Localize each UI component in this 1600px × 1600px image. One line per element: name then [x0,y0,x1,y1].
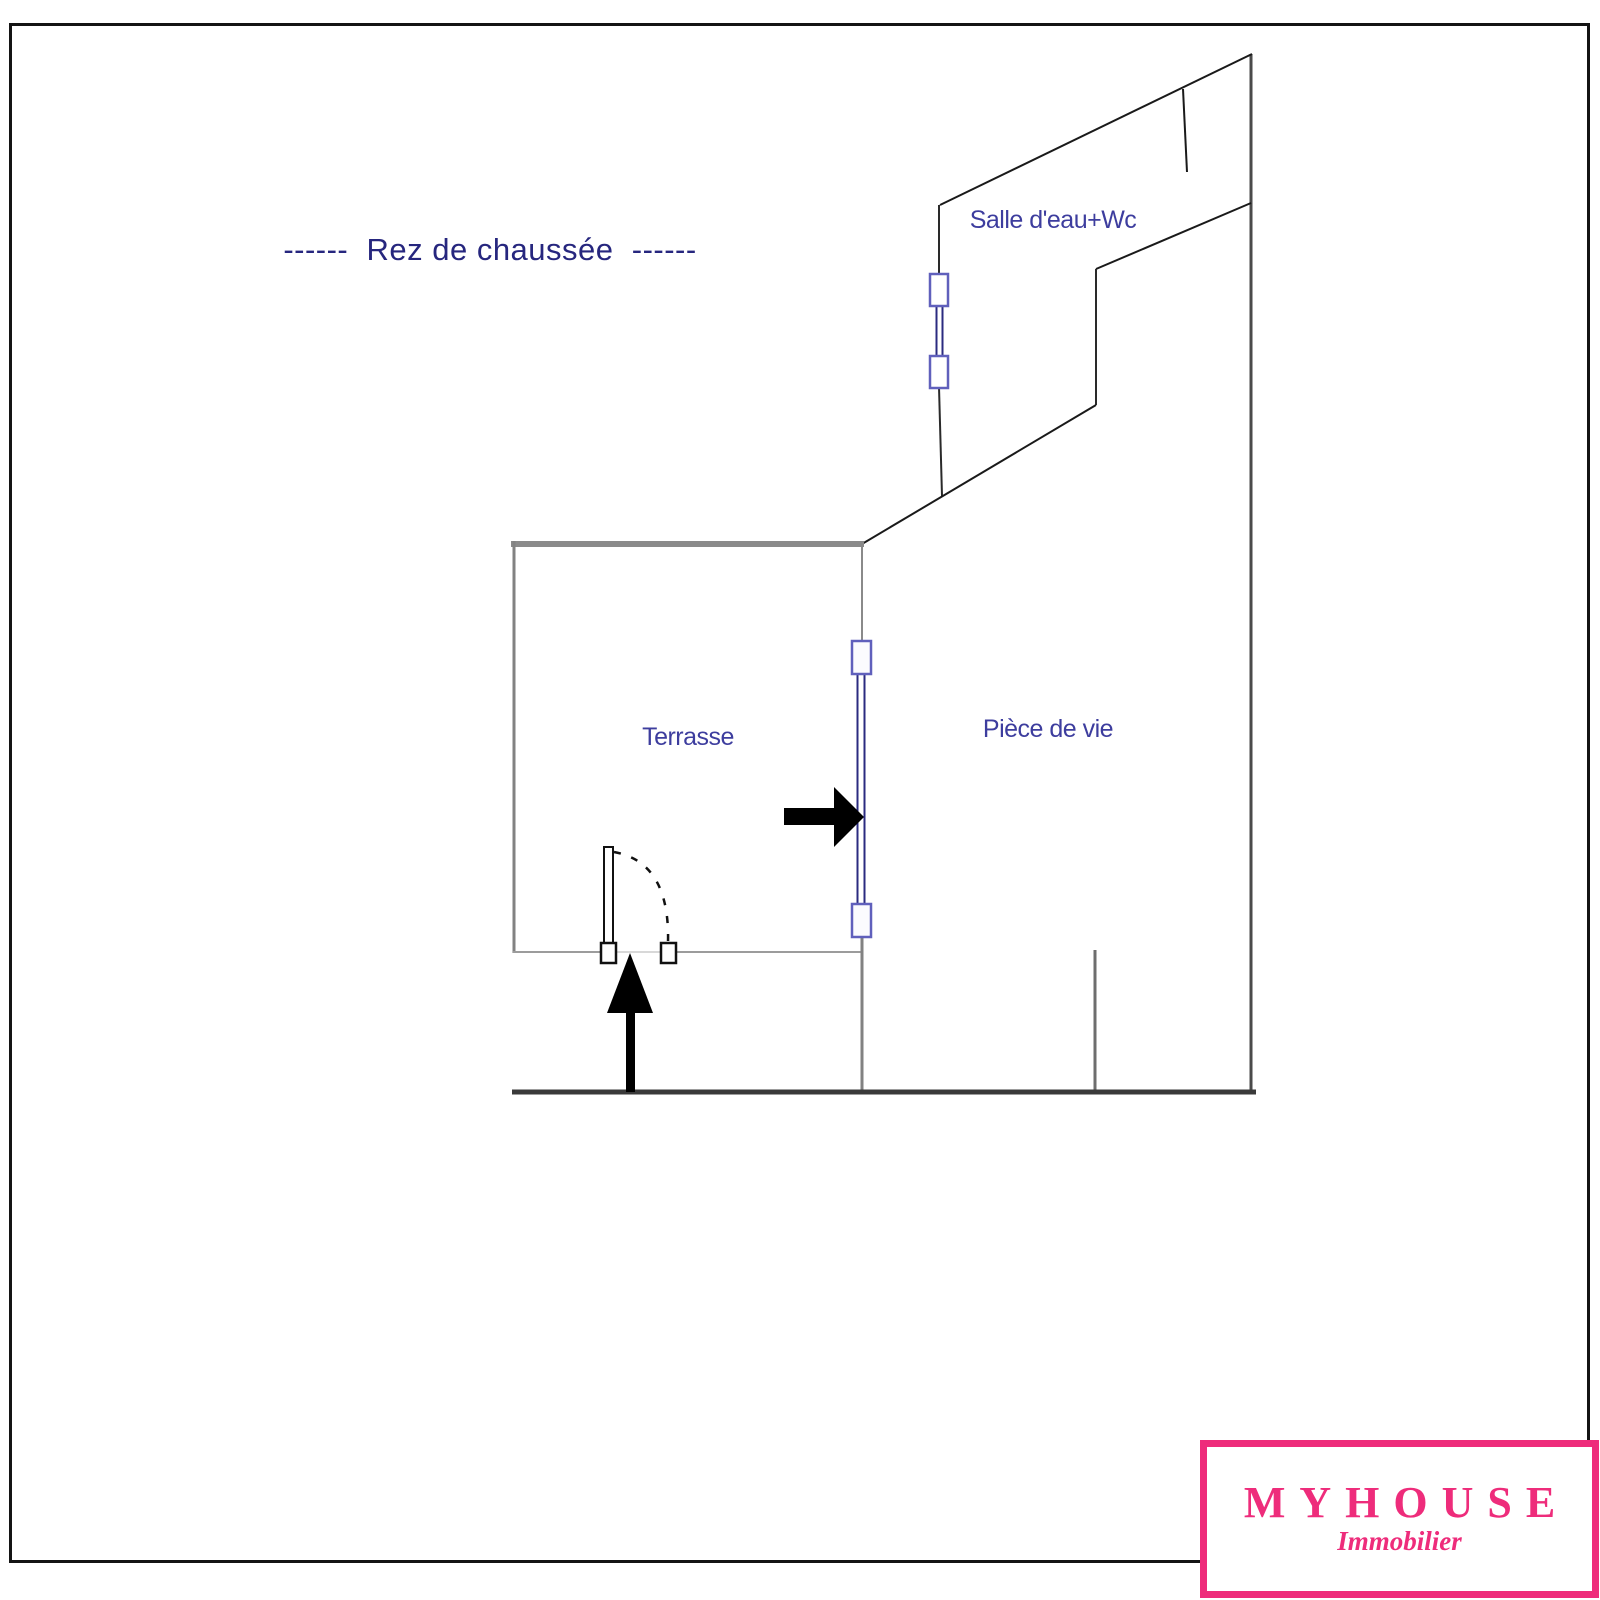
entry-door-icon [601,847,676,963]
agency-logo-tagline: Immobilier [1337,1527,1462,1557]
bathroom-bottom-diagonal-wall [862,405,1096,544]
room-label-bathroom: Salle d'eau+Wc [943,207,1163,235]
top-diagonal-wall [940,54,1252,205]
wall-tick-mark [1183,89,1187,172]
door-jamb-right [661,943,676,963]
agency-logo-name: MYHOUSE [1230,1481,1569,1525]
bathroom-window-icon [930,274,948,388]
room-label-terrace: Terrasse [578,724,798,752]
agency-logo: MYHOUSE Immobilier [1200,1440,1599,1598]
door-swing-arc-icon [614,852,668,942]
room-label-living-room: Pièce de vie [938,716,1158,744]
entrance-arrow-up-icon [607,953,653,1092]
bathroom-left-wall-lower [939,387,942,496]
bay-window-icon [852,641,871,937]
floor-plan-drawing [0,0,1600,1600]
door-jamb-left [601,943,616,963]
entrance-arrow-right-icon [784,787,864,847]
floorplan-page: ------ Rez de chaussée ------ [0,0,1600,1600]
door-leaf [604,847,613,947]
